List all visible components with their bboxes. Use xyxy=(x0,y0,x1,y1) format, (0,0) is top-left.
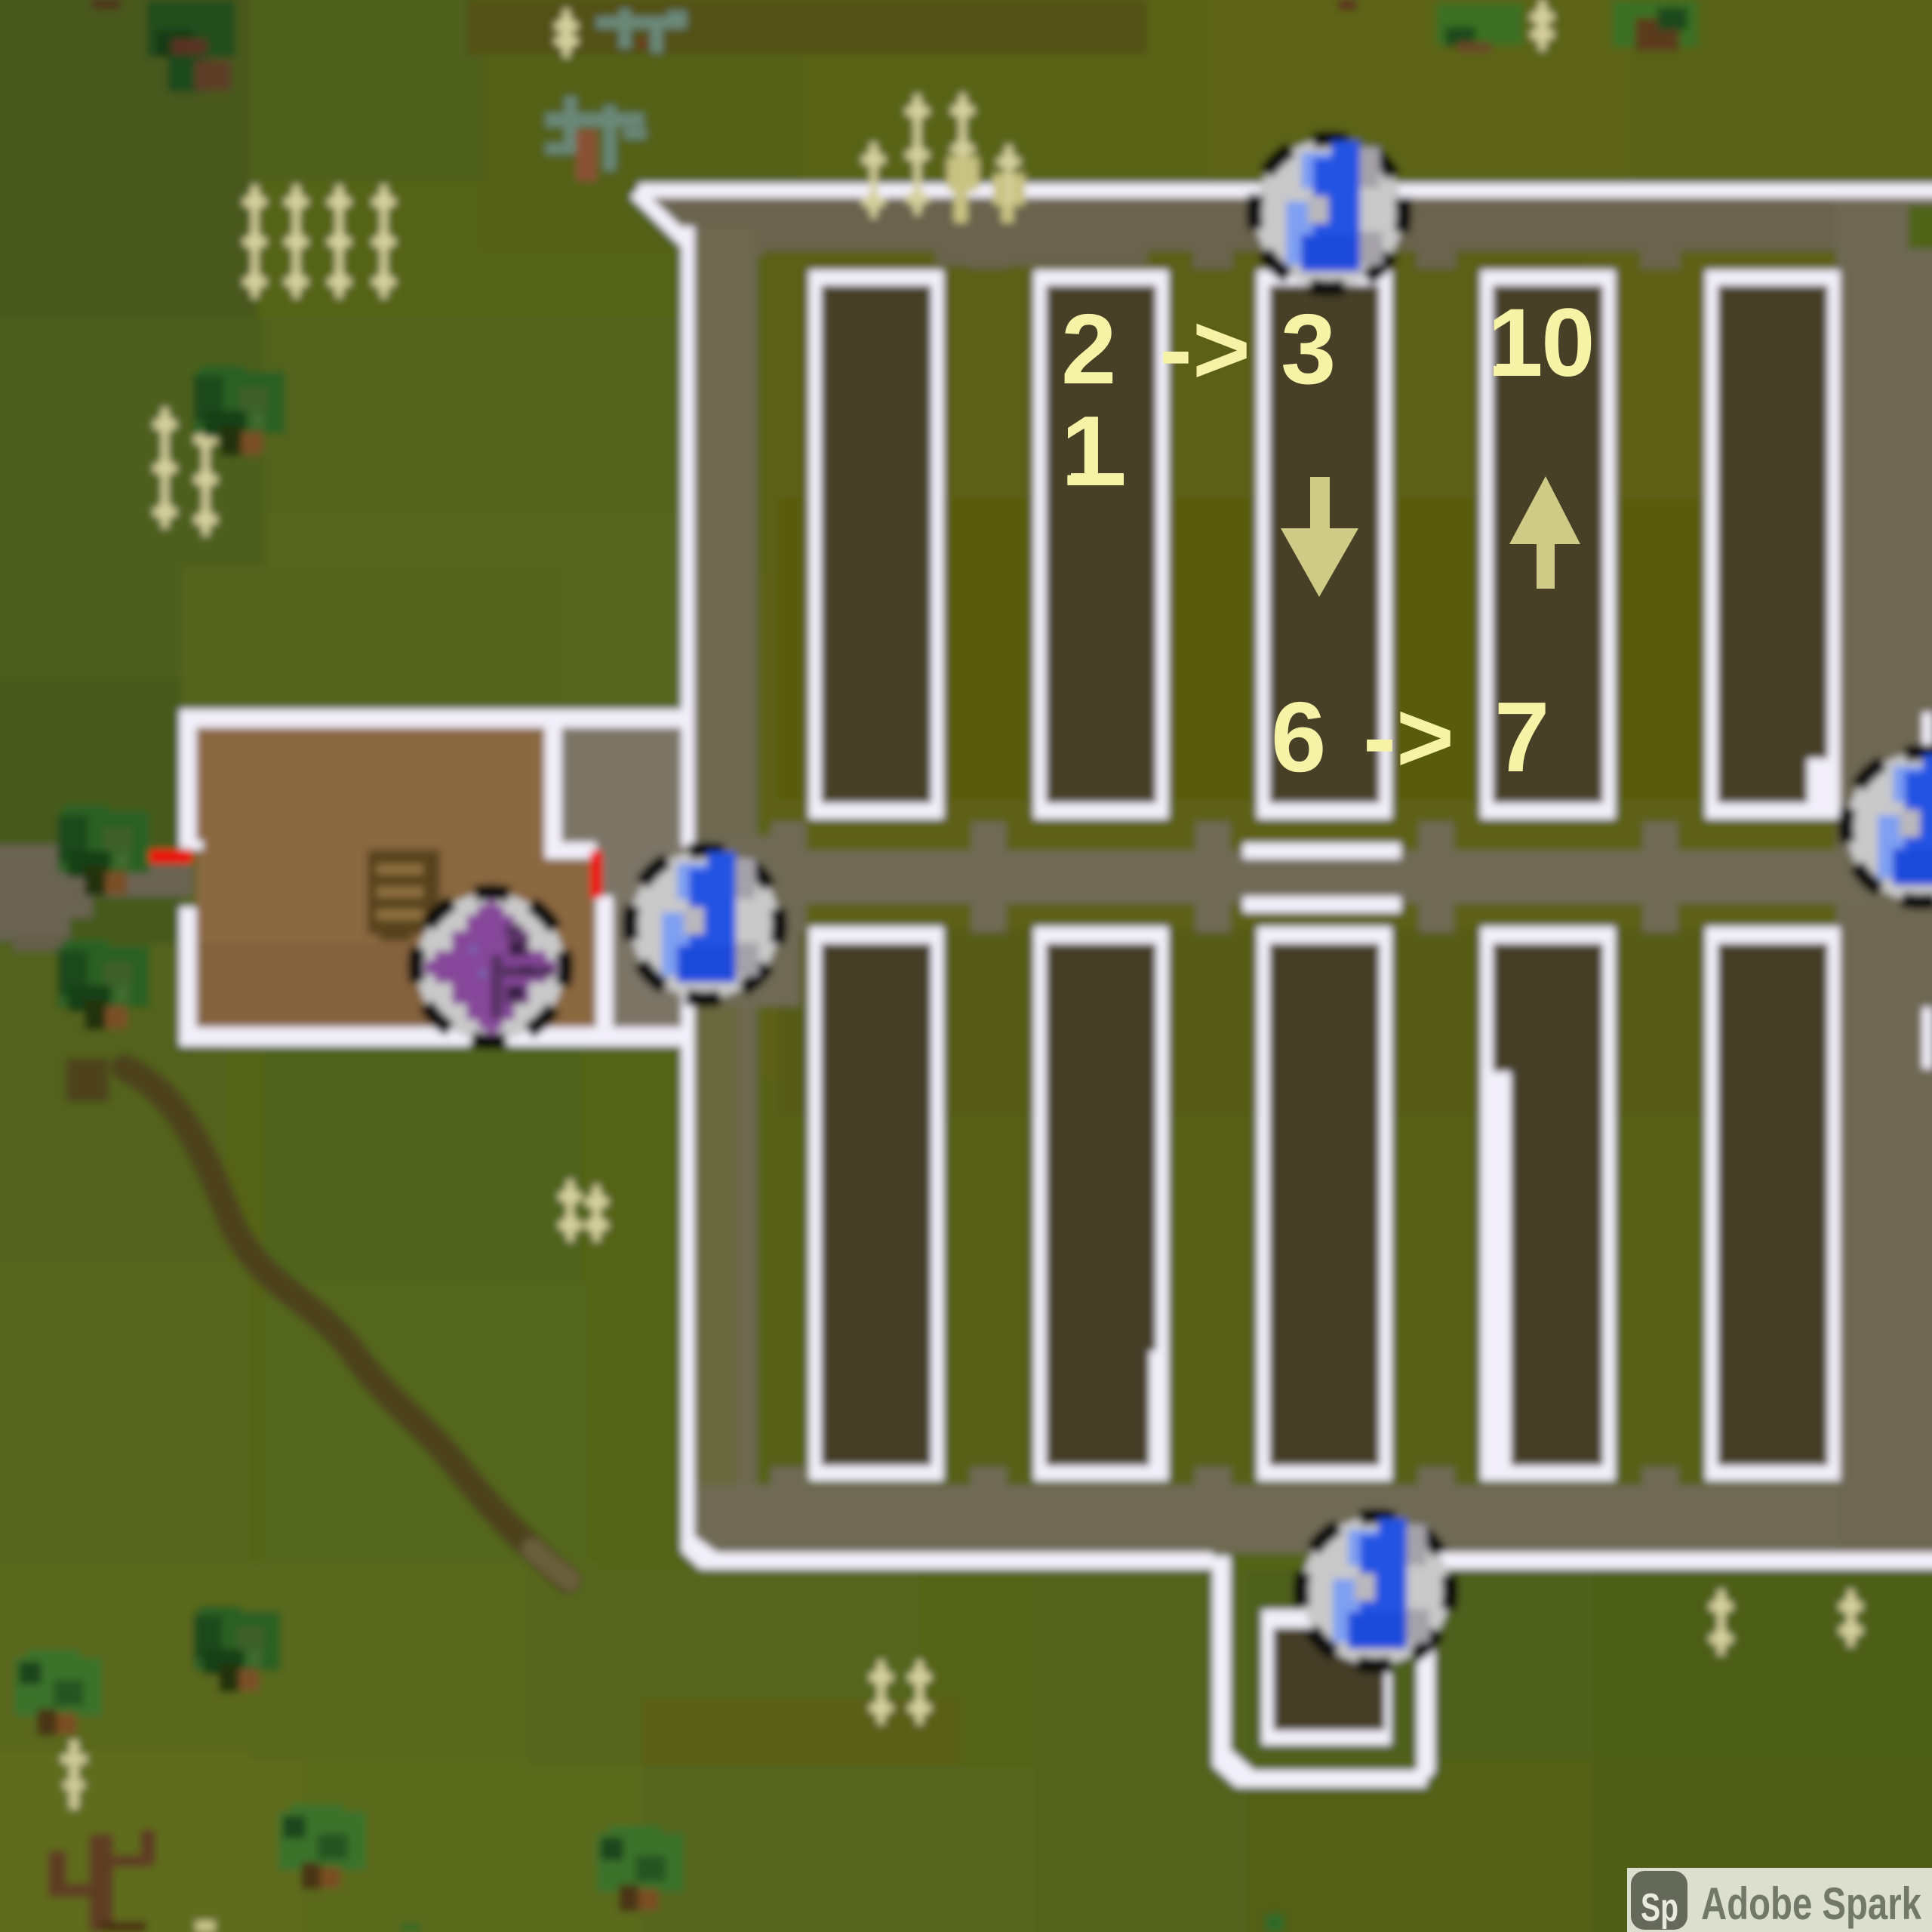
svg-text:->: -> xyxy=(1363,681,1454,792)
svg-text:6: 6 xyxy=(1271,681,1326,792)
svg-text:2: 2 xyxy=(1061,294,1116,405)
svg-text:7: 7 xyxy=(1494,681,1549,792)
svg-text:10: 10 xyxy=(1487,289,1595,397)
svg-text:1: 1 xyxy=(1061,395,1116,506)
svg-text:Adobe Spark: Adobe Spark xyxy=(1701,1878,1921,1929)
svg-text:3: 3 xyxy=(1281,294,1336,405)
svg-text:Sp: Sp xyxy=(1641,1886,1678,1930)
svg-text:->: -> xyxy=(1159,294,1251,405)
